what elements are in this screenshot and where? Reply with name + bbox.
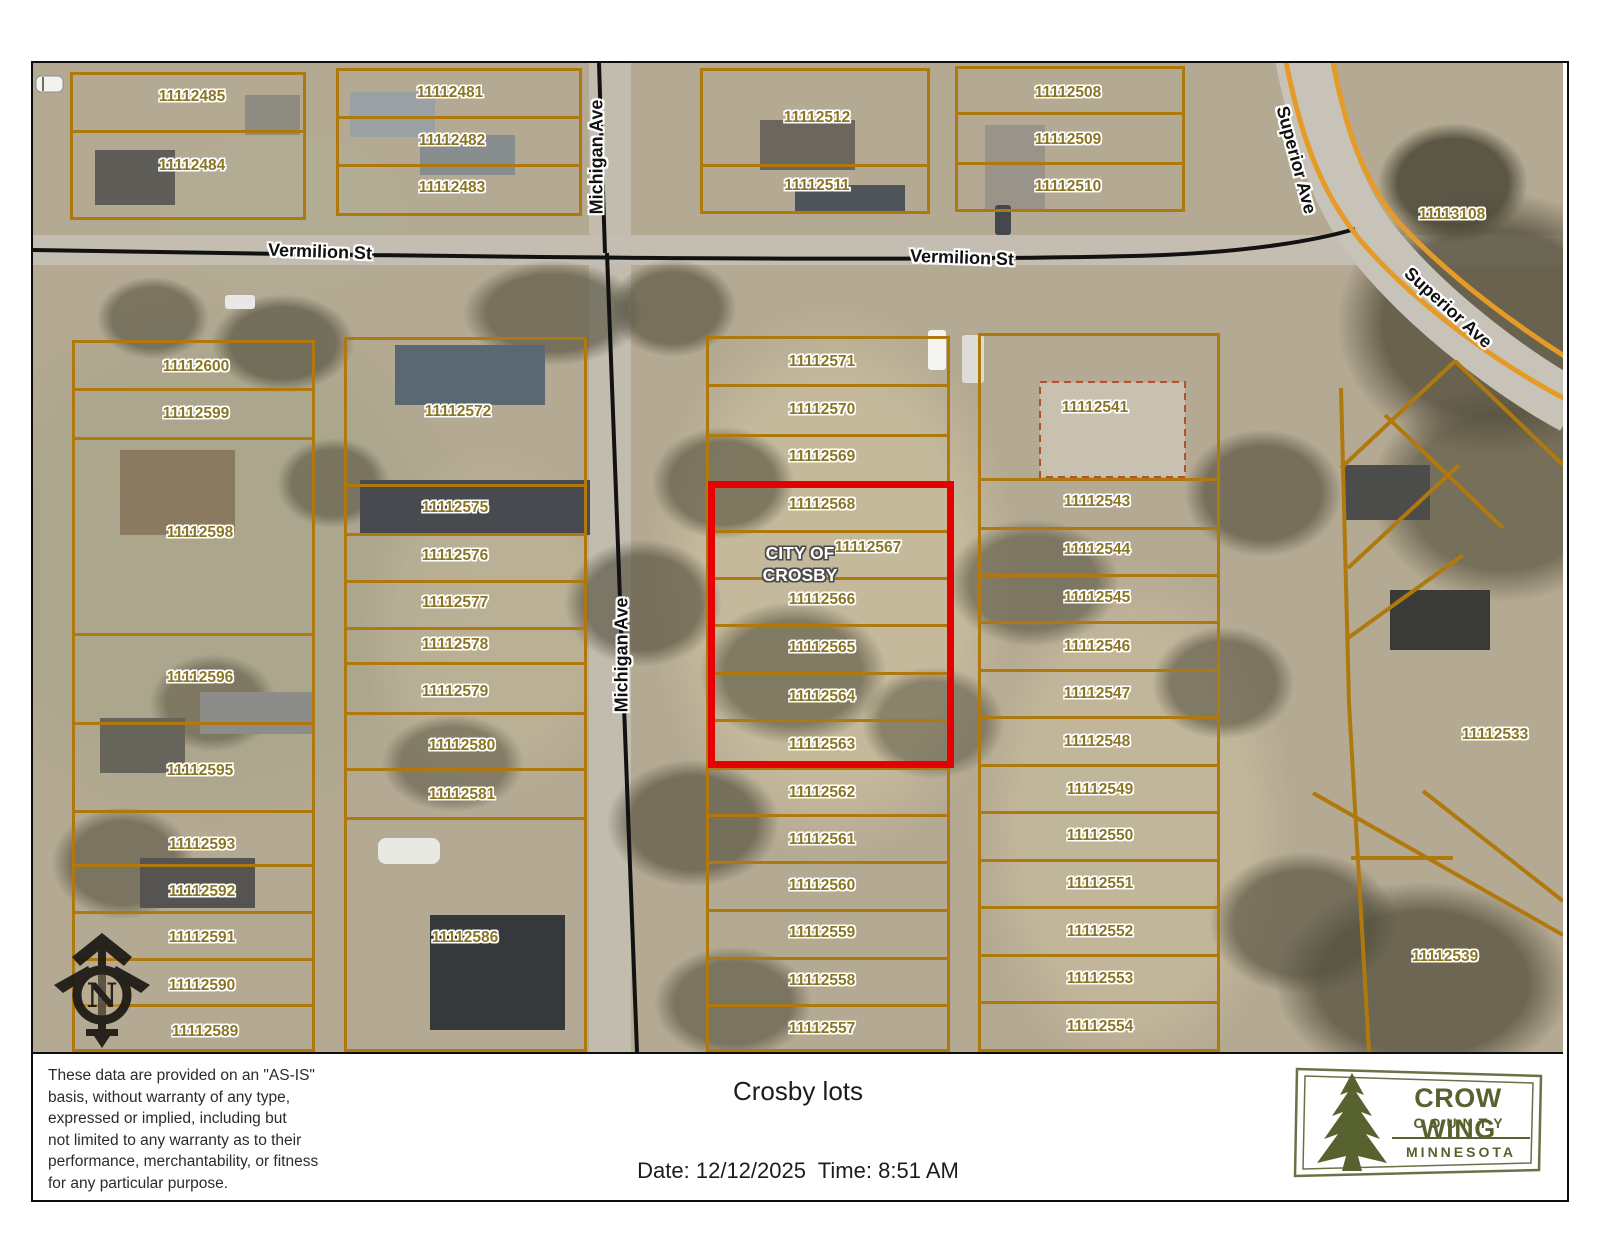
parcel-label: 11112484	[159, 157, 225, 175]
parcel-divider	[957, 112, 1183, 115]
car-icon	[36, 76, 63, 92]
vermilion-st-line	[33, 229, 1355, 259]
parcel-divider	[338, 116, 580, 119]
parcel-label: 11112548	[1064, 733, 1130, 751]
parcel-label: 11112578	[422, 636, 488, 654]
parcel-label: 11112560	[789, 877, 855, 895]
parcel-divider	[980, 669, 1218, 672]
parcel-divider	[346, 580, 585, 583]
parcel-divider	[74, 810, 313, 813]
parcel-label: 11112512	[784, 109, 850, 127]
parcel-label: 11112562	[789, 784, 855, 802]
parcel-divider	[980, 859, 1218, 862]
parcel-divider	[708, 861, 948, 864]
parcel-label: 11112541	[1062, 399, 1128, 417]
parcel-label: 11112600	[163, 358, 229, 376]
logo-county: COUNTY	[1382, 1115, 1540, 1131]
parcel-label: 11112533	[1462, 726, 1528, 744]
parcel-divider	[74, 437, 313, 440]
parcel-label: 11112586	[432, 929, 498, 947]
parcel-divider	[980, 478, 1218, 481]
print-frame: CITY OF CROSBY N 11112485111124841111248…	[31, 61, 1569, 1202]
parcel-label: 11112557	[789, 1020, 855, 1038]
parcel-divider	[980, 906, 1218, 909]
parcel-label: 11112567	[835, 539, 901, 557]
street-label: Vermilion St	[910, 246, 1015, 271]
parcel-divider	[338, 164, 580, 167]
north-arrow-icon: N	[52, 931, 152, 1049]
map-footer: These data are provided on an "AS-IS" ba…	[33, 1052, 1563, 1198]
parcel-label: 11112592	[169, 883, 235, 901]
parcel-divider	[346, 662, 585, 665]
parcel-label: 11112510	[1035, 178, 1101, 196]
parcel-label: 11112553	[1067, 970, 1133, 988]
parcel-divider	[346, 817, 585, 820]
parcel-label: 11112596	[167, 669, 233, 687]
parcel-divider	[74, 633, 313, 636]
parcel-label: 11112568	[789, 496, 855, 514]
parcel-divider	[708, 814, 948, 817]
parcel-label: 11112546	[1064, 638, 1130, 656]
parcel-label: 11112485	[159, 88, 225, 106]
parcel-label: 11112547	[1064, 685, 1130, 703]
parcel-divider	[74, 722, 313, 725]
street-label: Michigan Ave	[587, 100, 608, 215]
parcel-label: 11112554	[1067, 1018, 1133, 1036]
parcel-label: 11112561	[789, 831, 855, 849]
parcel-divider	[702, 164, 928, 167]
parcel-label: 11112558	[789, 972, 855, 990]
parcel-label: 11112482	[419, 132, 485, 150]
parcel-divider	[708, 434, 948, 437]
parcel-divider	[980, 574, 1218, 577]
parcel-divider	[346, 484, 585, 487]
parcel-label: 11112590	[169, 977, 235, 995]
parcel-label: 11112591	[169, 929, 235, 947]
parcel-label: 11112563	[789, 736, 855, 754]
parcel-label: 11112580	[429, 737, 495, 755]
parcel-label: 11112545	[1064, 589, 1130, 607]
parcel-label: 11112572	[425, 403, 491, 421]
parcel-label: 11112539	[1412, 948, 1478, 966]
parcel-divider	[346, 712, 585, 715]
parcel-label: 11112509	[1035, 131, 1101, 149]
north-letter: N	[86, 976, 117, 1016]
parcel-divider	[980, 527, 1218, 530]
parcel-label: 11112589	[172, 1023, 238, 1041]
parcel-label: 11112511	[784, 177, 850, 195]
parcel-label: 11112576	[422, 547, 488, 565]
parcel-divider	[72, 130, 304, 133]
parcel-label: 11112593	[169, 836, 235, 854]
parcel-label: 11112549	[1067, 781, 1133, 799]
street-label: Vermilion St	[268, 240, 373, 265]
parcel-divider	[708, 957, 948, 960]
parcel-divider	[346, 768, 585, 771]
crow-wing-county-logo: CROW WING COUNTY MINNESOTA	[1290, 1059, 1548, 1189]
parcel-label: 11112598	[167, 524, 233, 542]
parcel-divider	[980, 1001, 1218, 1004]
parcel-divider	[74, 388, 313, 391]
parcel-label: 11112571	[789, 353, 855, 371]
parcel-label: 11112481	[417, 84, 483, 102]
parcel-label: 11112552	[1067, 923, 1133, 941]
parcel-label: 11112599	[163, 405, 229, 423]
parcel-divider	[346, 627, 585, 630]
parcel-label: 11112569	[789, 448, 855, 466]
parcel-divider	[980, 621, 1218, 624]
parcel-divider	[980, 954, 1218, 957]
aerial-parcel-map: CITY OF CROSBY N 11112485111124841111248…	[33, 63, 1563, 1052]
city-of-crosby-label: CITY OF CROSBY	[763, 542, 838, 586]
parcel-label: 11112508	[1035, 84, 1101, 102]
parcel-label: 11112559	[789, 924, 855, 942]
logo-name: CROW WING	[1376, 1083, 1540, 1145]
street-label: Michigan Ave	[612, 598, 633, 713]
parcel-label: 11112550	[1067, 827, 1133, 845]
parcel-label: 11112551	[1067, 875, 1133, 893]
parcel-divider	[74, 864, 313, 867]
highlighted-parcels-rectangle	[708, 481, 954, 768]
parcel-label: 11112579	[422, 683, 488, 701]
parcel-divider	[708, 384, 948, 387]
parcel-label: 11112577	[422, 594, 488, 612]
parcel-label: 11112566	[789, 591, 855, 609]
parcel-label: 11112564	[789, 688, 855, 706]
logo-state: MINNESOTA	[1382, 1144, 1540, 1160]
parcel-label: 11112544	[1064, 541, 1130, 559]
parcel-divider	[346, 533, 585, 536]
parcel-label: 11112570	[789, 401, 855, 419]
parcel-divider	[708, 909, 948, 912]
parcel-divider	[957, 162, 1183, 165]
parcel-divider	[980, 764, 1218, 767]
parcel-divider	[708, 1004, 948, 1007]
parcel-label: 11112543	[1064, 493, 1130, 511]
parcel-label: 11112575	[422, 499, 488, 517]
parcel-label: 11112565	[789, 639, 855, 657]
parcel-label: 11112595	[167, 762, 233, 780]
parcel-divider	[980, 716, 1218, 719]
parcel-label: 11112581	[429, 786, 495, 804]
parcel-label: 11113108	[1419, 206, 1485, 224]
parcel-divider	[74, 911, 313, 914]
logo-divider	[1392, 1137, 1530, 1139]
parcel-label: 11112483	[419, 179, 485, 197]
parcel-divider	[980, 811, 1218, 814]
